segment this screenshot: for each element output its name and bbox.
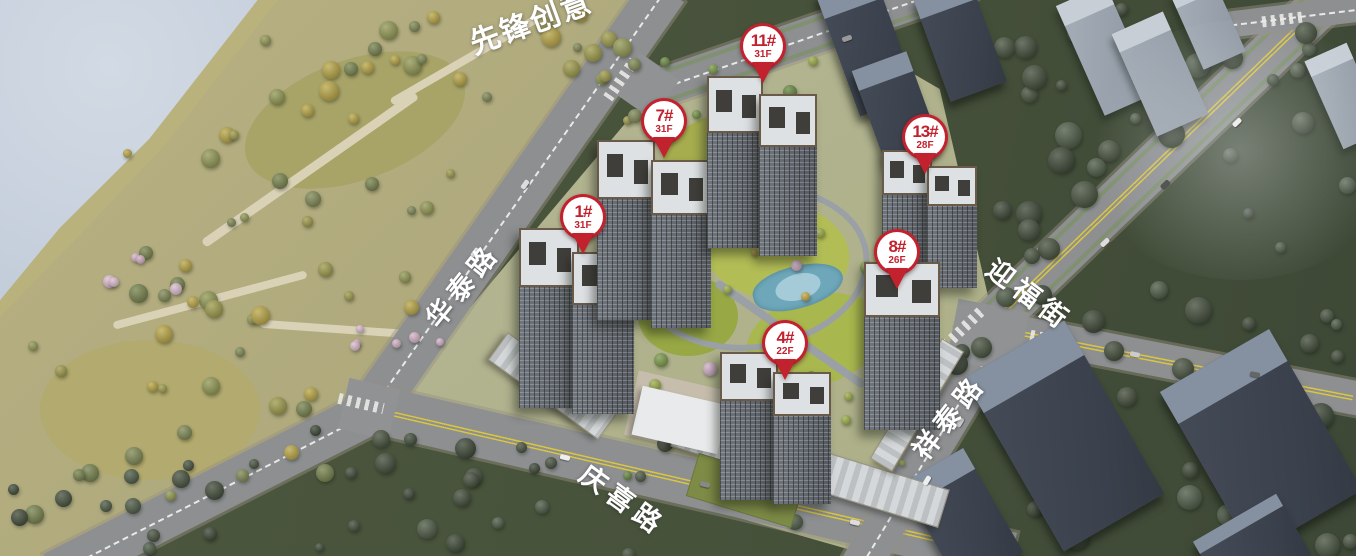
tree [8,484,19,495]
tree [302,216,313,227]
tree [404,433,417,446]
tree [136,255,145,264]
masterplan-aerial-view: 先锋创意 华泰路 迎福街 祥泰路 庆喜路 1# 31F 4# 22F 7# 31… [0,0,1356,556]
tree [123,149,132,158]
tree [482,92,492,102]
tree [692,110,701,119]
pin-pointer-icon [752,62,774,83]
tree [344,291,354,301]
tree [628,58,641,71]
pin-face: 11# 31F [743,26,783,66]
tree [844,392,853,401]
tree [240,213,249,222]
tree [392,339,401,348]
tree [129,284,148,303]
tree [155,325,173,343]
tree [304,387,318,401]
tree [1024,248,1040,264]
building-number: 8# [889,238,906,255]
building-number: 11# [751,32,775,49]
building-floors: 31F [754,50,771,60]
tree [322,61,340,79]
tree [1177,485,1202,510]
tree [535,500,549,514]
tree [1331,319,1342,330]
tree [125,447,143,465]
tree [628,109,642,123]
pin-pointer-icon [572,233,594,254]
tree [318,262,333,277]
building-number: 7# [656,107,673,124]
tree [179,259,192,272]
tree [356,325,364,333]
tree [269,397,287,415]
tree [301,104,314,117]
building-pin-11[interactable]: 11# 31F [740,23,786,83]
tree [573,43,582,52]
tree [124,469,139,484]
tree [622,548,635,556]
pin-pointer-icon [653,137,675,158]
tree [236,469,249,482]
building-pin-7[interactable]: 7# 31F [641,98,687,158]
tree [584,44,602,62]
tree [1185,297,1212,324]
tree [296,401,312,417]
tree [158,384,167,393]
tree [315,543,324,552]
building-floors: 22F [776,347,793,357]
tree [436,338,444,346]
tree [1242,317,1256,331]
building-number: 1# [575,203,592,220]
tower-11-left [707,76,763,248]
tree [613,38,632,57]
pin-face: 7# 31F [644,101,684,141]
tree [492,517,504,529]
tree [399,271,411,283]
pin-face: 13# 28F [905,117,945,157]
tree [177,425,192,440]
tree [365,177,379,191]
tree [187,296,199,308]
tree [1055,122,1082,149]
building-pin-8[interactable]: 8# 26F [874,229,920,289]
tree [463,472,479,488]
tree [201,149,220,168]
tree [1182,462,1199,479]
tree [379,21,398,40]
tree [375,453,396,474]
building-floors: 31F [655,125,672,135]
tree [417,519,437,539]
tree [348,113,359,124]
tree [1315,533,1340,556]
building-floors: 31F [574,221,591,231]
building-number: 4# [777,329,794,346]
tree [446,169,455,178]
tree [1331,350,1344,363]
tree [1300,334,1319,353]
tree [269,89,285,105]
tree [545,457,557,469]
tree [284,445,299,460]
tree [147,529,160,542]
building-number: 13# [912,123,937,140]
building-pin-13[interactable]: 13# 28F [902,114,948,174]
tower-1-left [519,228,579,408]
tree [899,460,905,466]
tree [407,206,416,215]
building-floors: 26F [888,256,905,266]
tree [316,464,334,482]
tree [170,283,182,295]
tree [599,70,611,82]
tree [801,292,810,301]
tree [1104,341,1124,361]
tree [1048,147,1075,174]
tree [1038,238,1060,260]
tree [703,362,717,376]
tree [841,415,851,425]
tree [427,11,440,24]
tree [1150,281,1168,299]
tree [344,62,358,76]
tree [100,500,112,512]
pin-pointer-icon [914,153,936,174]
tree [453,72,467,86]
pin-face: 8# 26F [877,232,917,272]
tower-4-right [773,372,831,504]
tree [125,498,141,514]
tree [971,337,992,358]
tree [403,488,415,500]
tree [409,21,420,32]
tree [183,460,194,471]
tree [55,490,72,507]
tree [158,289,171,302]
tree [368,42,382,56]
tree [1018,219,1040,241]
building-pin-4[interactable]: 4# 22F [762,320,808,380]
tree [147,381,158,392]
tree [654,353,668,367]
tree [11,509,28,526]
pin-pointer-icon [774,359,796,380]
tree [361,61,374,74]
tree [165,490,176,501]
tower-11-right [759,94,817,256]
tree [1022,65,1047,90]
pin-pointer-icon [886,268,908,289]
tree [529,463,540,474]
tree [516,442,527,453]
tree [272,173,288,189]
tree [390,55,400,65]
tree [1343,534,1356,549]
tree [319,81,339,101]
tree [808,56,818,66]
tree [708,64,718,74]
tree [28,341,38,351]
tree [751,249,758,256]
tree [409,332,420,343]
building-pin-1[interactable]: 1# 31F [560,194,606,254]
tree [249,459,259,469]
tree [993,201,1012,220]
tree [55,365,67,377]
tree [229,130,239,140]
tree [260,35,271,46]
tree [1014,36,1037,59]
tree [723,285,732,294]
building-floors: 28F [916,141,933,151]
tree [202,377,220,395]
tree [205,481,224,500]
tree [350,341,360,351]
tree [660,57,670,67]
tree [446,534,465,553]
tree [372,430,390,448]
tree [305,191,321,207]
tree [563,60,580,77]
tree [1082,310,1105,333]
tree [251,306,270,325]
tree [345,467,357,479]
tree [791,260,802,271]
tree [1117,387,1137,407]
tree [453,489,471,507]
tower-7-right [651,160,711,328]
tree [635,471,646,482]
tree [203,527,217,541]
tree [420,201,434,215]
tree [455,438,476,459]
pin-face: 1# 31F [563,197,603,237]
tree [172,470,190,488]
tree [310,425,321,436]
pin-face: 4# 22F [765,323,805,363]
tree [235,347,245,357]
tree [205,300,223,318]
tree [227,218,236,227]
tree [1056,80,1067,91]
tree [109,277,119,287]
tree [73,469,85,481]
tree [348,520,360,532]
tree [25,505,44,524]
tree [417,54,427,64]
tree [143,542,156,555]
